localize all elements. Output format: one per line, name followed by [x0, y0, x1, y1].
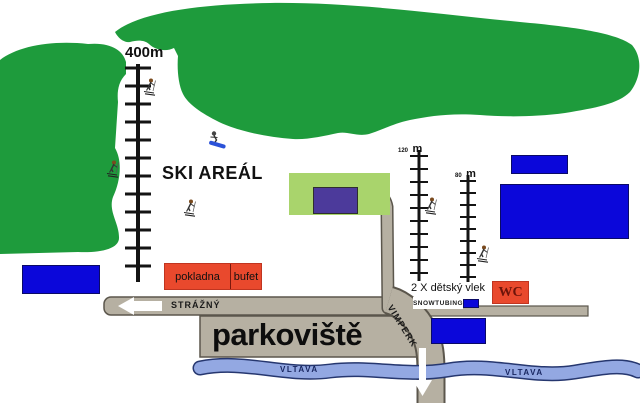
ski-lift-child-2 [460, 175, 476, 282]
map-title: SKI AREÁL [162, 163, 263, 184]
child-lift-1-length: 120 [398, 148, 408, 154]
road-strazny-label: STRÁŽNÝ [171, 300, 221, 310]
children-lifts-caption: 2 X dětský vlek [411, 282, 485, 294]
skier-icon [425, 198, 437, 215]
blue-lot-snowtubing [463, 299, 479, 308]
ski-lift-child-1 [410, 150, 428, 281]
parking-label: parkoviště [212, 317, 362, 353]
ski-lift-main [125, 64, 151, 282]
wc-building: WC [492, 281, 529, 304]
forest-area-top [115, 3, 639, 139]
snowboarder-icon [209, 131, 226, 149]
services-building: pokladna bufet [164, 263, 262, 290]
blue-lot-right-small [511, 155, 568, 174]
ticket-office-label: pokladna [165, 264, 231, 289]
building-purple [313, 187, 358, 214]
skier-icon [477, 246, 489, 263]
river-label-left: VLTAVA [280, 365, 319, 374]
river-label-right: VLTAVA [505, 368, 544, 377]
blue-lot-right-large [500, 184, 629, 239]
child-lift-2-unit: m [466, 168, 476, 180]
blue-lot-left [22, 265, 100, 294]
skier-icon [184, 200, 196, 217]
buffet-label: bufet [231, 264, 261, 289]
building-green [289, 173, 390, 215]
main-lift-length-label: 400m [125, 44, 163, 61]
child-lift-1-unit: m [412, 143, 422, 155]
snowtubing-label: SNOWTUBING [413, 297, 463, 309]
forest-area-left [0, 43, 126, 254]
blue-lot-parking [431, 318, 486, 344]
child-lift-2-length-label: 80 m [455, 164, 476, 182]
child-lift-1-length-label: 120 m [398, 139, 422, 157]
child-lift-2-length: 80 [455, 173, 462, 179]
ski-area-map: pokladna bufet WC 400m SKI AREÁL 120 m 8… [0, 0, 640, 403]
